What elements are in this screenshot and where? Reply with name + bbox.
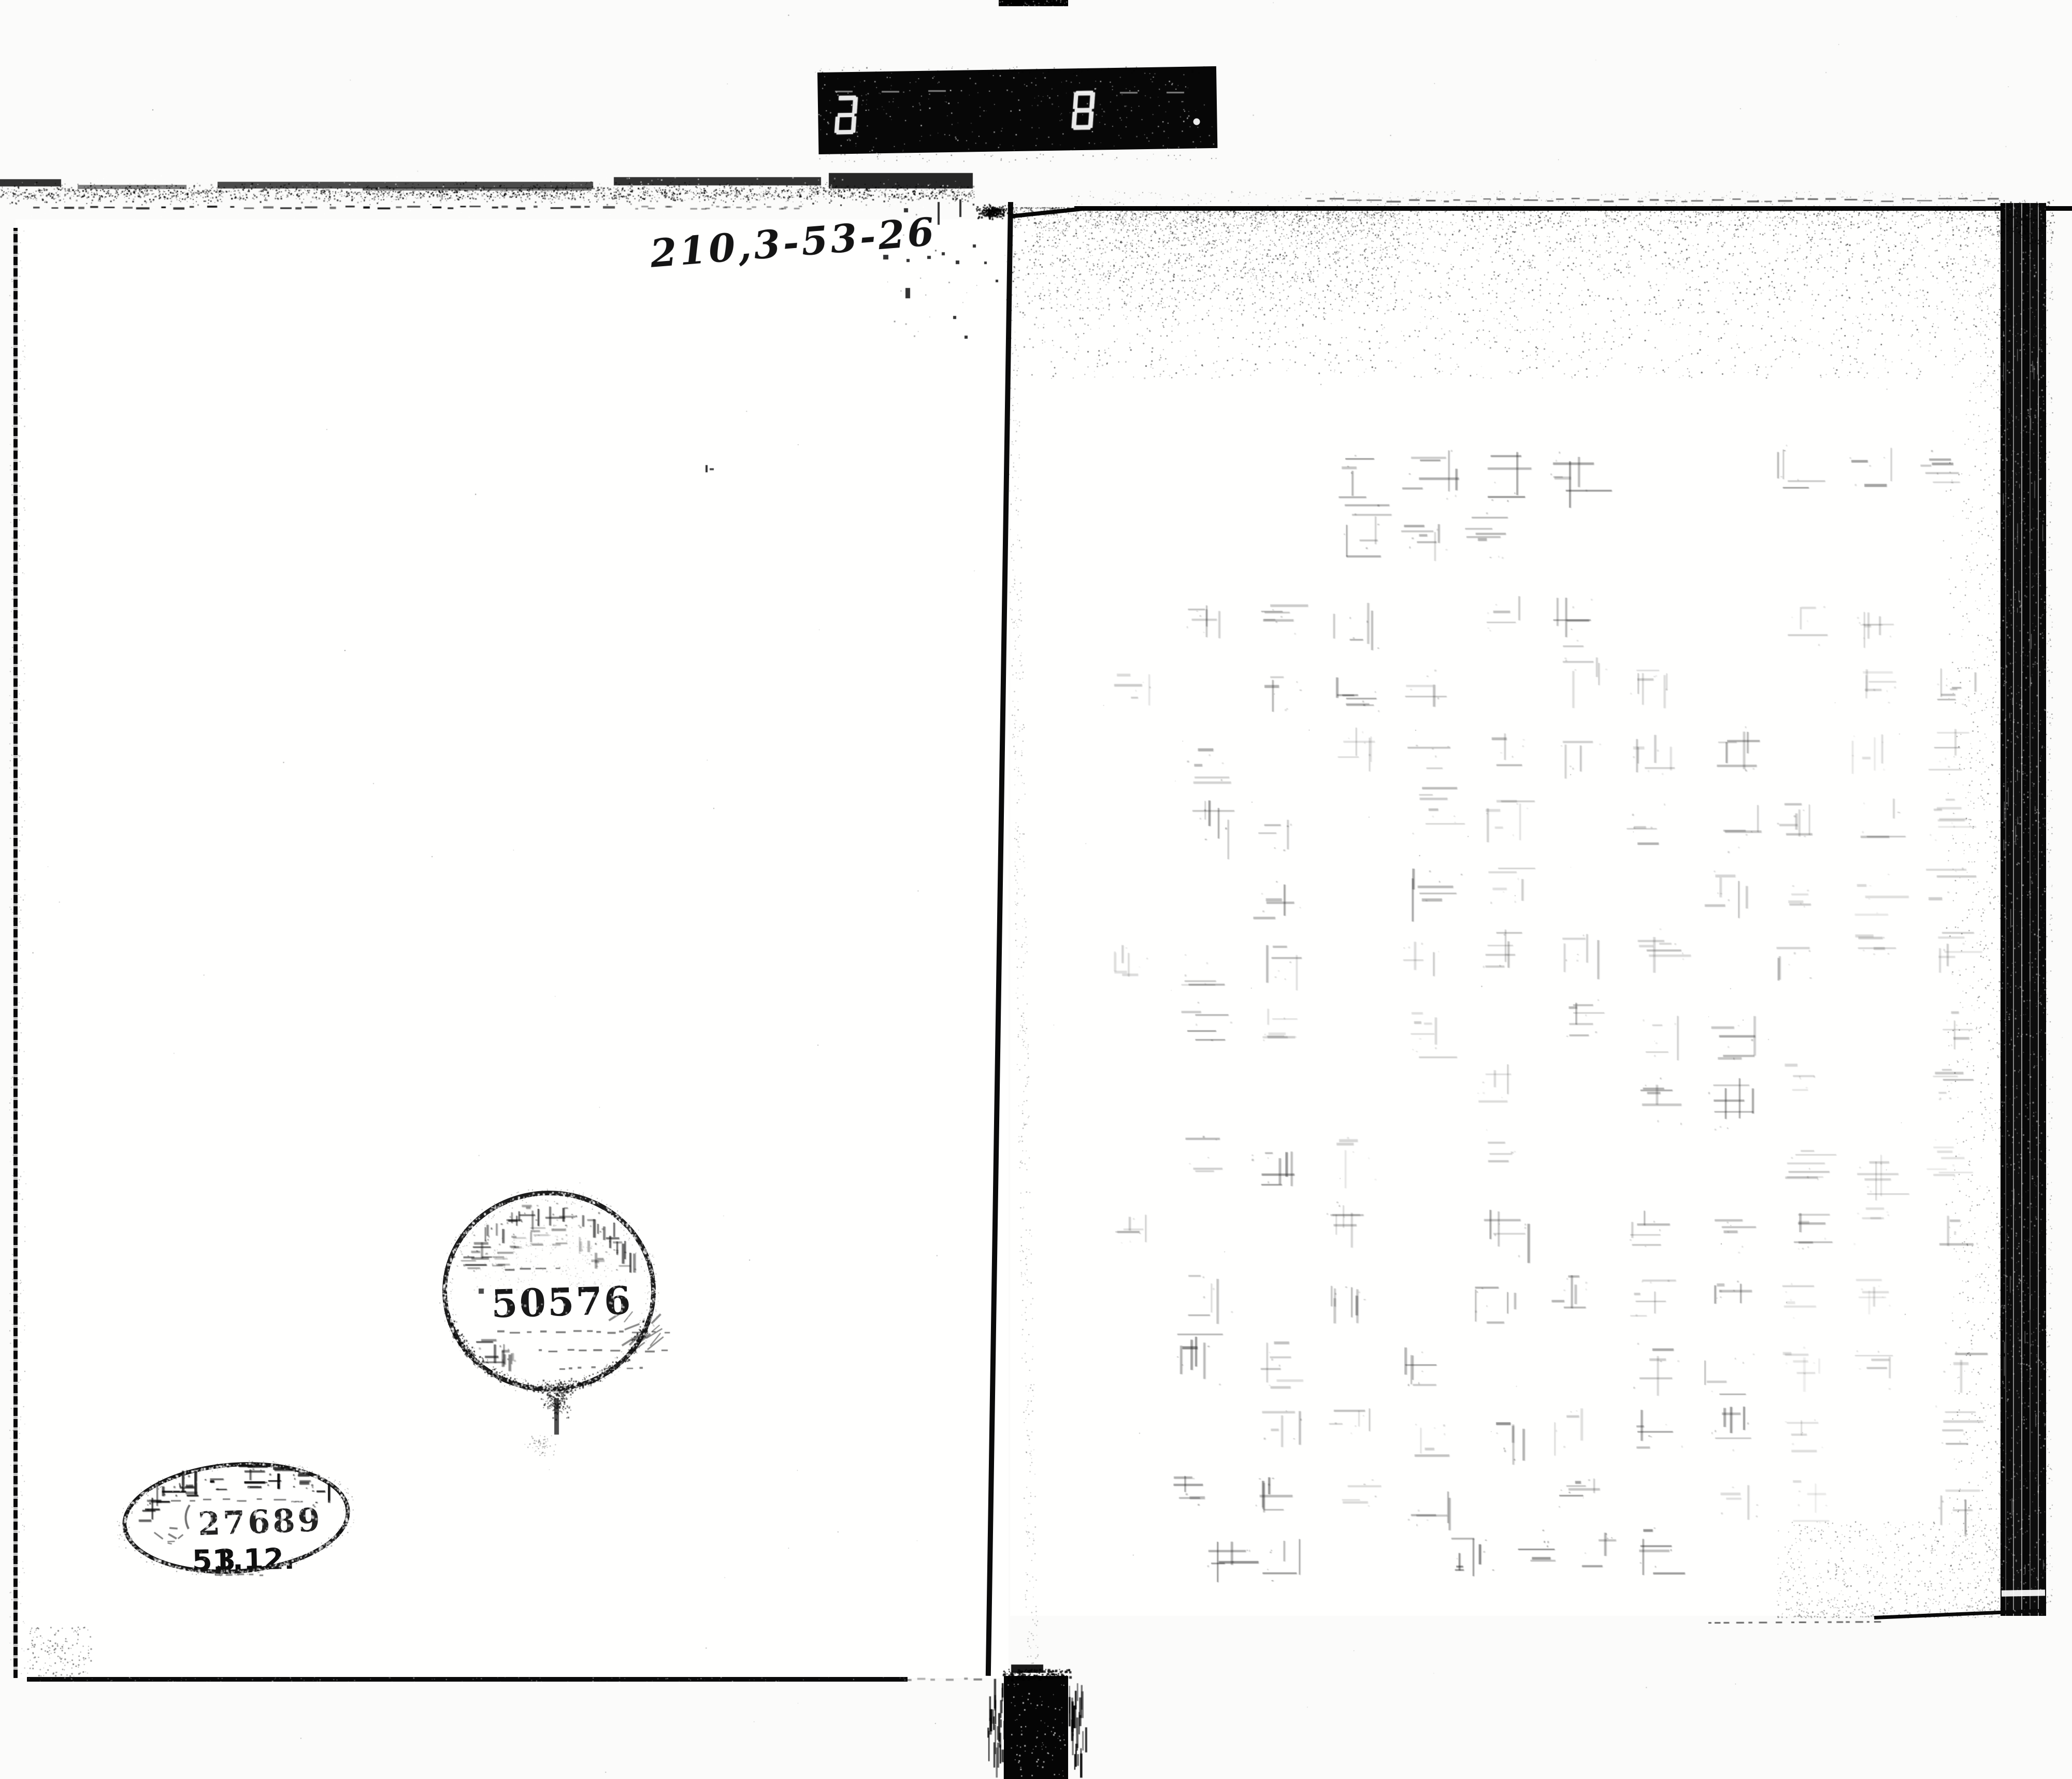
scan-noise-layer bbox=[0, 0, 2072, 1779]
scanned-book-opening: 50576 27689 51.12.3 210,3-53-26 bbox=[0, 0, 2072, 1779]
